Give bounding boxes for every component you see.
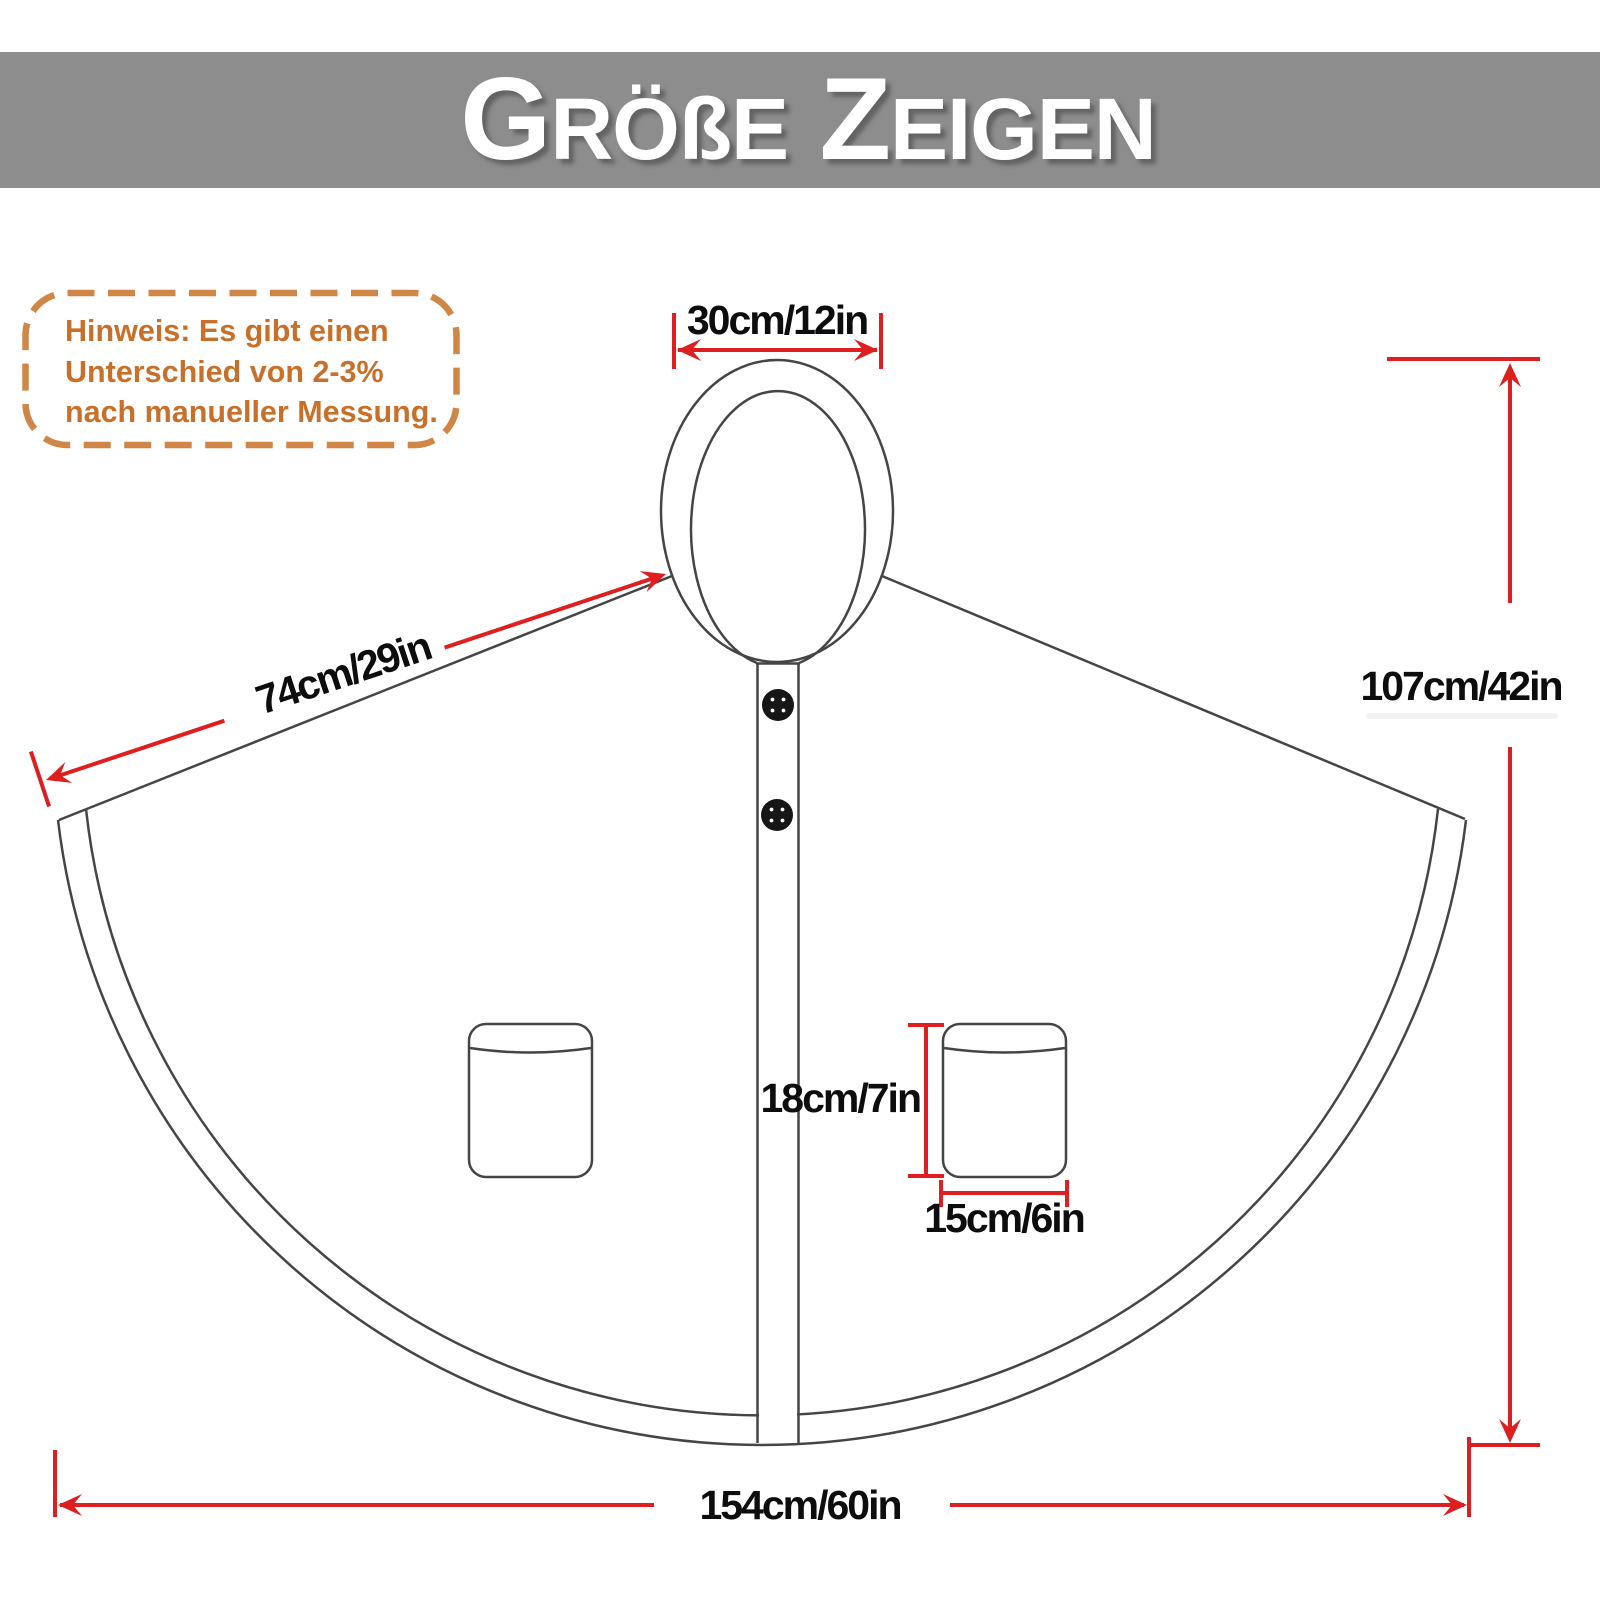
svg-text:Unterschied von 2-3%: Unterschied von 2-3% — [65, 355, 384, 389]
svg-text:Hinweis: Es gibt einen: Hinweis: Es gibt einen — [65, 314, 389, 348]
svg-text:nach manueller Messung.: nach manueller Messung. — [65, 395, 438, 429]
svg-text:154cm/60in: 154cm/60in — [699, 1482, 900, 1528]
svg-text:107cm/42in: 107cm/42in — [1360, 663, 1561, 709]
svg-text:30cm/12in: 30cm/12in — [687, 297, 867, 343]
svg-text:15cm/6in: 15cm/6in — [924, 1195, 1084, 1241]
svg-text:18cm/7in: 18cm/7in — [761, 1075, 921, 1121]
